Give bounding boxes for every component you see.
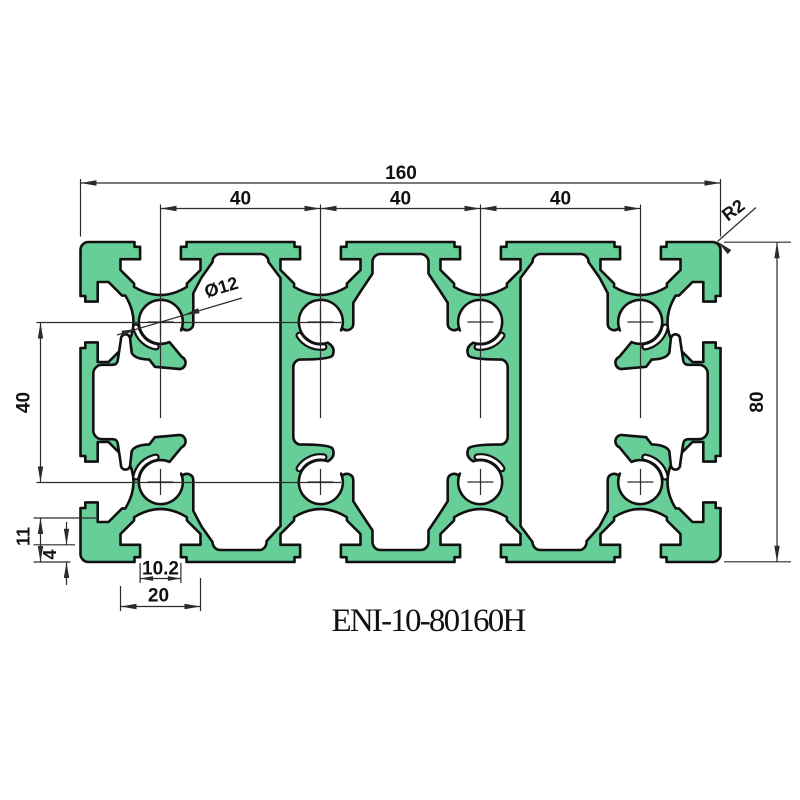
svg-text:40: 40 [550, 189, 571, 210]
svg-text:160: 160 [385, 163, 417, 184]
svg-text:40: 40 [390, 189, 411, 210]
svg-text:40: 40 [230, 189, 251, 210]
svg-text:11: 11 [14, 527, 34, 546]
svg-text:20: 20 [148, 586, 169, 607]
svg-text:ENI-10-80160H: ENI-10-80160H [332, 603, 526, 639]
svg-text:10.2: 10.2 [142, 559, 179, 580]
svg-text:40: 40 [14, 392, 35, 413]
svg-text:80: 80 [747, 391, 768, 412]
svg-text:4: 4 [40, 549, 60, 559]
